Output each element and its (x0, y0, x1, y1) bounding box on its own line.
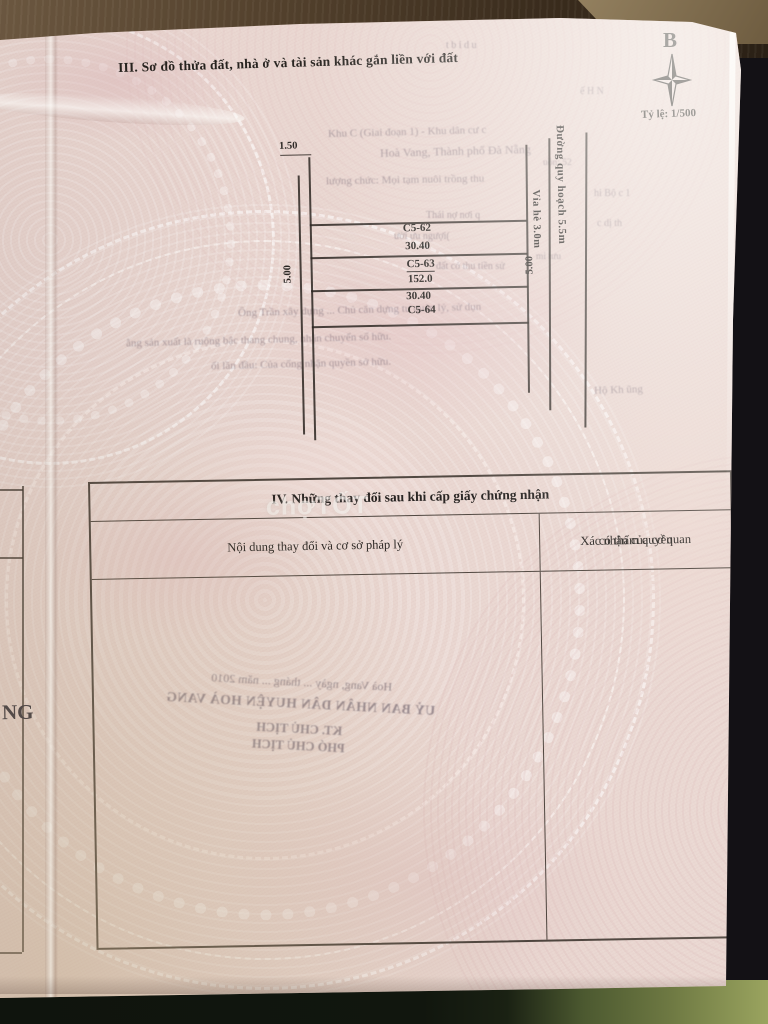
photo-lighting (0, 0, 768, 1024)
photo-of-land-certificate: Khu C (Giai đoạn 1) - Khu dân cư cHoà Va… (0, 0, 768, 1024)
certificate-page: Khu C (Giai đoạn 1) - Khu dân cư cHoà Va… (0, 0, 768, 1024)
paper-fold-line (45, 0, 58, 1024)
